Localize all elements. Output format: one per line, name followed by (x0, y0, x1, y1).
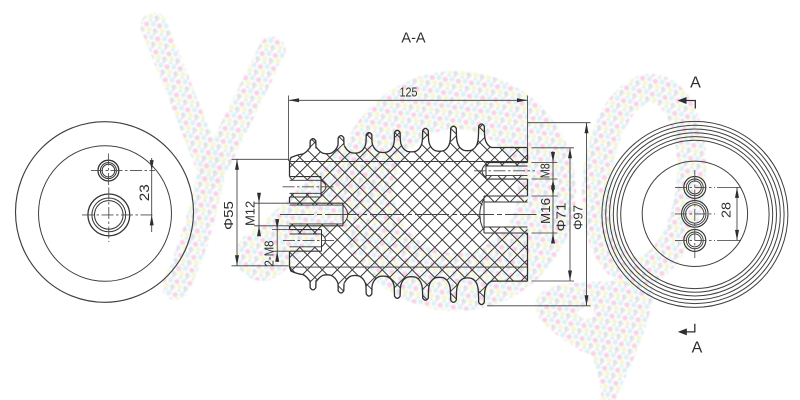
svg-text:A: A (690, 75, 701, 92)
svg-text:A-A: A-A (401, 31, 426, 47)
svg-text:Φ71: Φ71 (554, 203, 569, 232)
svg-text:Φ97: Φ97 (571, 205, 586, 230)
svg-text:125: 125 (400, 85, 418, 100)
svg-text:2-M8: 2-M8 (262, 241, 277, 267)
svg-text:A: A (692, 340, 703, 357)
svg-text:M16: M16 (538, 198, 553, 224)
svg-text:23: 23 (136, 184, 152, 201)
svg-text:Φ55: Φ55 (221, 201, 236, 230)
svg-text:M12: M12 (243, 201, 258, 226)
svg-text:M8: M8 (538, 163, 553, 178)
svg-text:28: 28 (719, 202, 734, 218)
